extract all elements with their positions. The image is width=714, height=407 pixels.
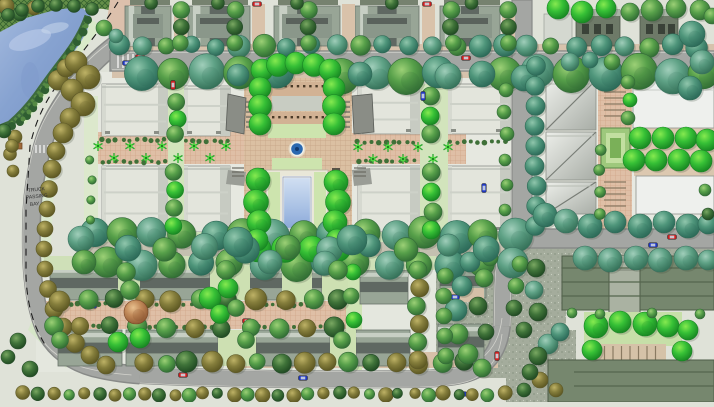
svg-text:BAY: BAY [30, 201, 41, 208]
